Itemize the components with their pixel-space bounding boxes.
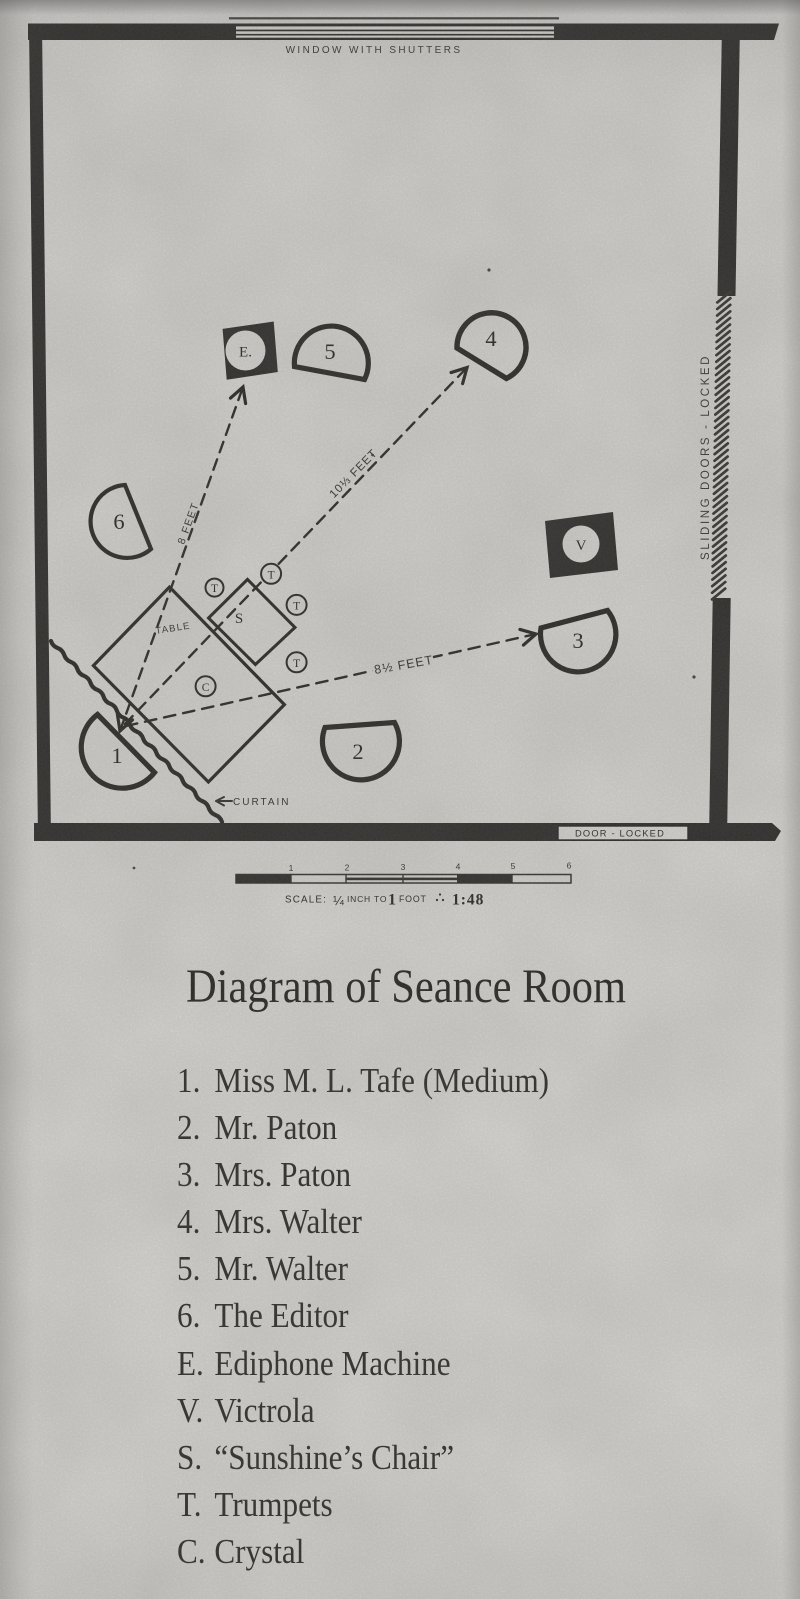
svg-text:1:48: 1:48	[452, 892, 484, 909]
svg-text:C: C	[202, 682, 210, 694]
svg-text:3: 3	[401, 862, 406, 872]
svg-text:WINDOW WITH SHUTTERS: WINDOW WITH SHUTTERS	[286, 45, 463, 56]
svg-text:1: 1	[388, 892, 396, 909]
svg-text:E.: E.	[239, 345, 252, 361]
svg-text:CURTAIN: CURTAIN	[233, 797, 291, 808]
svg-text:¼: ¼	[333, 893, 344, 908]
svg-text:2: 2	[345, 863, 350, 873]
svg-text:5: 5	[324, 339, 335, 364]
svg-text:1: 1	[111, 743, 122, 768]
svg-text:T: T	[293, 600, 300, 612]
svg-text:SCALE:: SCALE:	[285, 895, 327, 906]
svg-text:6: 6	[113, 509, 124, 534]
svg-text:6: 6	[567, 861, 572, 871]
svg-text:3: 3	[572, 628, 583, 653]
svg-text:4: 4	[456, 862, 461, 872]
svg-text:T: T	[293, 658, 300, 670]
svg-text:5: 5	[511, 861, 516, 871]
svg-text:V: V	[576, 538, 587, 554]
svg-text:INCH TO: INCH TO	[347, 894, 387, 904]
svg-text:1: 1	[289, 863, 294, 873]
svg-text:DOOR - LOCKED: DOOR - LOCKED	[575, 829, 665, 839]
svg-text:4: 4	[485, 326, 496, 351]
svg-text:T: T	[211, 583, 218, 595]
svg-text:2: 2	[352, 739, 363, 764]
svg-text:S: S	[235, 611, 243, 627]
svg-text:SLIDING DOORS - LOCKED: SLIDING DOORS - LOCKED	[700, 354, 712, 560]
svg-text:8½ FEET: 8½ FEET	[373, 653, 434, 677]
svg-text:FOOT: FOOT	[399, 894, 427, 904]
svg-text:8 FEET: 8 FEET	[176, 501, 202, 546]
svg-text:T: T	[268, 569, 275, 581]
